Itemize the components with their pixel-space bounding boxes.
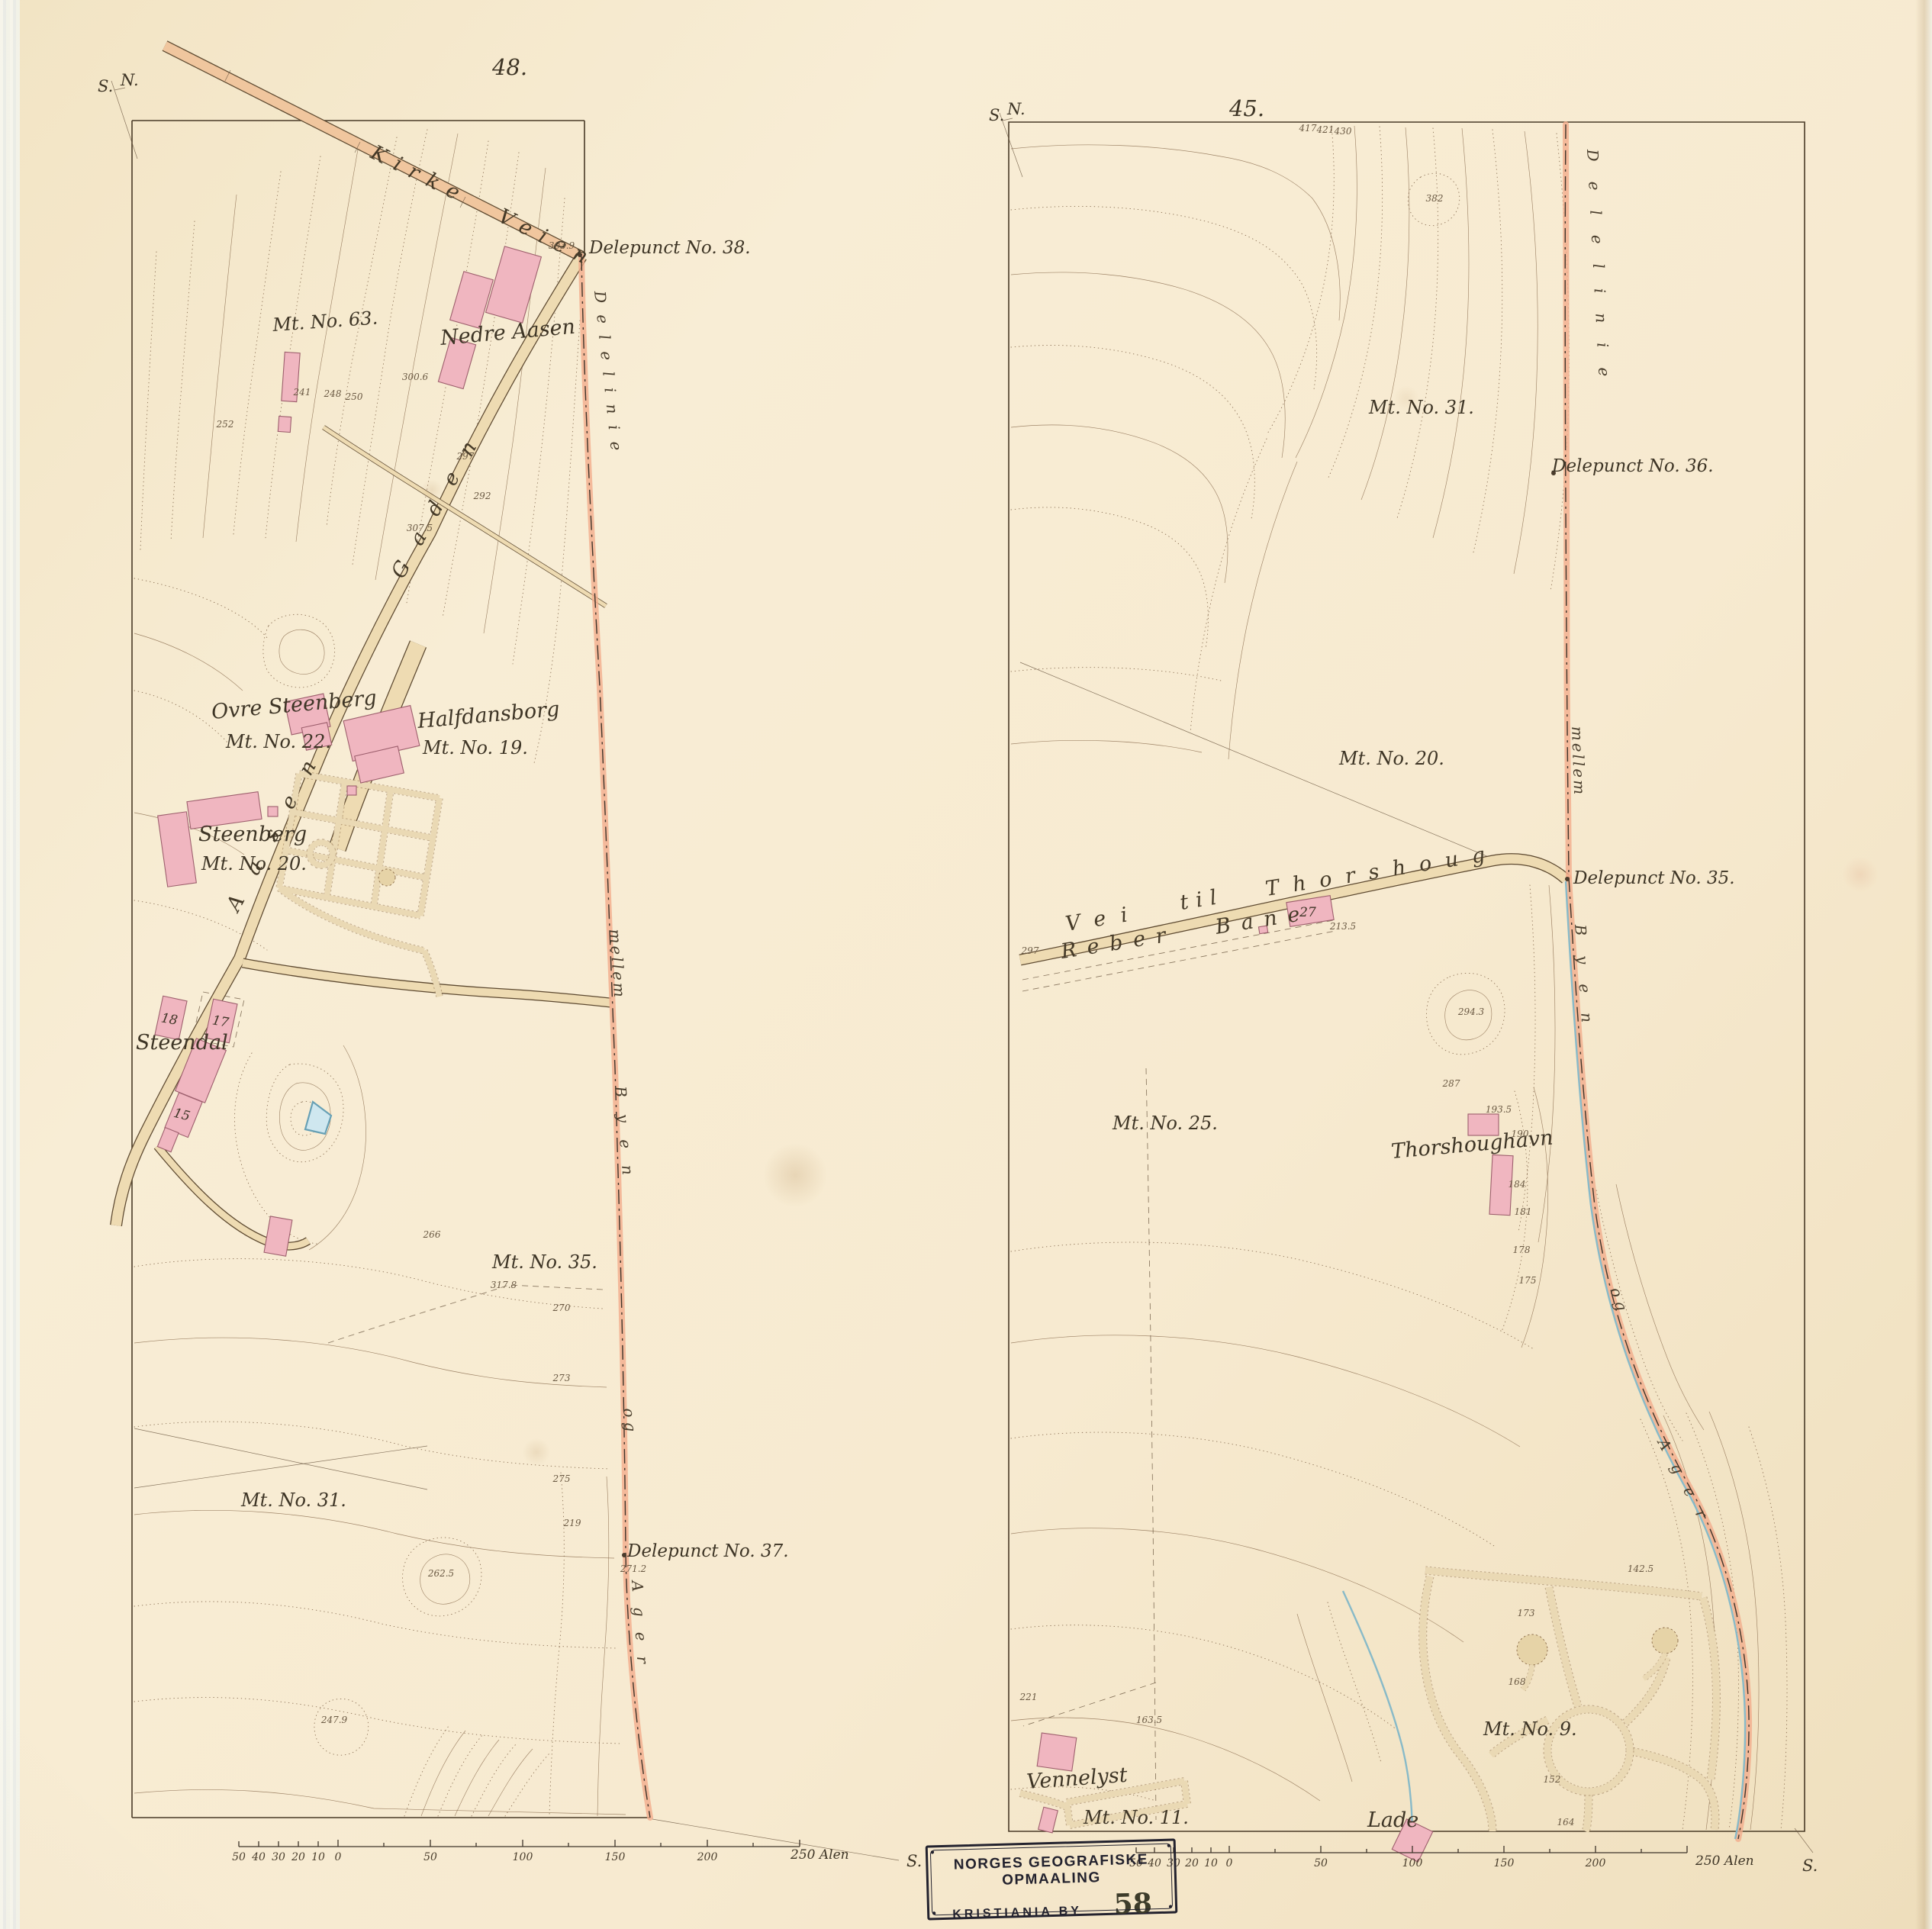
map-label: 100 [1402,1857,1423,1869]
map-label: 50 [232,1851,246,1863]
left-contours [134,130,626,1816]
right-frame [1009,122,1805,1831]
pond [305,1102,331,1134]
elevation-mark: 184 [1509,1179,1526,1190]
publisher-stamp: NORGES GEOGRAFISKE OPMAALING KRISTIANIA … [926,1838,1178,1920]
elevation-mark: 247.9 [320,1715,348,1725]
map-label: 150 [1494,1857,1515,1869]
elevation-mark: 142.5 [1628,1563,1653,1574]
map-label: Mt. No. 35. [491,1251,597,1273]
map-label: 20 [291,1851,305,1863]
compass-south-right: S. [989,106,1004,124]
elevation-mark: 163.5 [1136,1715,1162,1725]
map-canvas: 48.S.N.Kirke VeienGadenAasenDelepunct No… [0,0,1932,1929]
map-label: 20 [1184,1857,1199,1869]
elevation-mark: 190 [1512,1129,1529,1139]
elevation-mark: 297 [456,451,475,462]
stamp-city: KRISTIANIA BY [952,1905,1082,1922]
left-frame [132,121,650,1818]
elevation-mark: 181 [1515,1206,1532,1217]
map-label: 30 [272,1851,285,1863]
left-panel: 48.S.N.Kirke VeienGadenAasenDelepunct No… [98,46,922,1870]
left-pond [305,1102,331,1134]
compass-north-right: N. [1006,100,1026,118]
map-label: 27 [1299,905,1316,920]
left-boundary [578,253,899,1860]
elevation-mark: 262.5 [427,1568,454,1579]
stamp-title: NORGES GEOGRAFISKE OPMAALING [928,1851,1174,1892]
map-label: Mt. No. 11. [1083,1807,1189,1828]
map-label: 0 [1226,1857,1233,1869]
map-label: Mt. No. 31. [1368,397,1474,418]
map-label: 50 [1314,1857,1328,1869]
elevation-mark: 307.5 [407,523,433,533]
elevation-mark: 168 [1509,1676,1526,1687]
elevation-mark: 178 [1513,1245,1531,1255]
map-label: og [620,1407,640,1437]
map-label: Mt. No. 19. [422,737,528,758]
left-labels: 48.S.N.Kirke VeienGadenAasenDelepunct No… [98,54,922,1870]
map-label: 100 [513,1851,533,1863]
elevation-mark: 297 [1021,945,1039,956]
scan-edge-left [0,0,20,1929]
elevation-mark: 273 [552,1373,571,1383]
elevation-mark: 213.5 [1329,921,1356,932]
map-label: 17 [211,1013,230,1030]
delepunct-36-label: Delepunct No. 36. [1551,456,1714,476]
halfdansborg-label: Halfdansborg [416,697,561,733]
elevation-mark: 164 [1557,1817,1575,1828]
map-label: Mt. No. 20. [201,853,307,874]
elevation-mark: 175 [1519,1275,1537,1286]
map-label: Mt. No. 22. [225,731,331,752]
elevation-mark: 421 [1316,124,1335,135]
elevation-mark: 250 [345,391,363,402]
map-label: mellem [1568,726,1589,797]
map-label: 10 [1204,1857,1218,1869]
delepunct-35-label: Delepunct No. 35. [1573,868,1735,888]
scan-edge-right [1915,0,1932,1929]
map-label: 10 [311,1851,325,1863]
delepunct-37-label: Delepunct No. 37. [626,1541,789,1561]
elevation-mark: 303.9 [549,240,575,251]
map-label: 18 [159,1010,179,1028]
elevation-mark: 294.3 [1457,1006,1485,1017]
delepunct-38-label: Delepunct No. 38. [588,238,751,258]
south-mark-left: S. [906,1852,922,1870]
map-label: og [1606,1285,1632,1317]
right-contours [1011,126,1787,1830]
compass-north-left: N. [120,71,139,89]
left-compass [111,81,137,159]
garden-tree [1517,1634,1547,1665]
elevation-mark: 382 [1426,193,1444,204]
sheet-number-right: 45. [1228,95,1264,121]
elevation-mark: 275 [552,1473,571,1484]
elevation-mark: 266 [423,1229,441,1240]
road-label-kirkeveien: Kirke Veien [366,140,601,273]
elevation-mark: 317.8 [491,1280,517,1290]
elevation-mark: 270 [552,1303,571,1313]
elevation-mark: 300.6 [402,372,429,382]
garden-tree [378,869,395,886]
map-label: 0 [335,1851,342,1863]
vennelyst-label: Vennelyst [1026,1763,1128,1794]
elevation-mark: 292 [473,491,491,501]
stamp-sheet-number: 58 [1113,1889,1152,1918]
map-label: Mt. No. 9. [1483,1718,1577,1740]
map-label: 200 [1585,1857,1606,1869]
elevation-mark: 271.2 [620,1563,646,1574]
elevation-mark: 287 [1442,1078,1460,1089]
lade-label: Lade [1367,1808,1418,1832]
scale-unit-left: 250 Alen [790,1847,849,1863]
right-panel: 45.S.N.Mt. No. 31.Delepunct No. 36.Mt. N… [989,95,1818,1875]
map-label: Delelinie [1583,148,1615,397]
compass-south-left: S. [98,77,113,95]
elevation-mark: 173 [1518,1608,1535,1618]
elevation-mark: 248 [324,388,342,399]
elevation-mark: 252 [216,419,234,430]
elevation-mark: 152 [1544,1774,1561,1785]
steenberg-label: Steenberg [198,823,307,846]
map-label: 150 [605,1851,626,1863]
left-scale-bar [239,1840,800,1847]
map-label: Mt. No. 63. [271,307,378,336]
map-label: Mt. No. 20. [1338,748,1444,769]
map-label: 200 [697,1851,718,1863]
elevation-mark: 219 [563,1518,581,1528]
sheet-number-left: 48. [491,54,527,80]
road-label-til: til [1178,884,1225,915]
elevation-mark: 221 [1019,1692,1038,1702]
map-label: 50 [423,1851,437,1863]
steendal-label: Steendal [136,1031,228,1055]
elevation-mark: 417 [1299,123,1317,134]
map-label: 40 [251,1851,266,1863]
right-garden-paths [1423,1570,1717,1831]
map-label: Ager [1653,1434,1719,1536]
elevation-mark: 193.5 [1486,1104,1512,1115]
elevation-mark: 241 [293,387,311,398]
scanned-map-sheet: 48.S.N.Kirke VeienGadenAasenDelepunct No… [0,0,1932,1929]
map-label: Mt. No. 31. [240,1489,346,1511]
scale-unit-right: 250 Alen [1695,1853,1754,1869]
garden-tree [1652,1628,1678,1654]
right-elevation-marks: 417421430382294.3287297213.5193.51901841… [1019,123,1654,1828]
elevation-mark: 430 [1334,126,1352,137]
map-label: Delelinie [591,289,626,462]
right-labels: 45.S.N.Mt. No. 31.Delepunct No. 36.Mt. N… [989,95,1818,1875]
map-label: Mt. No. 25. [1112,1113,1218,1134]
south-mark-right: S. [1802,1857,1818,1875]
